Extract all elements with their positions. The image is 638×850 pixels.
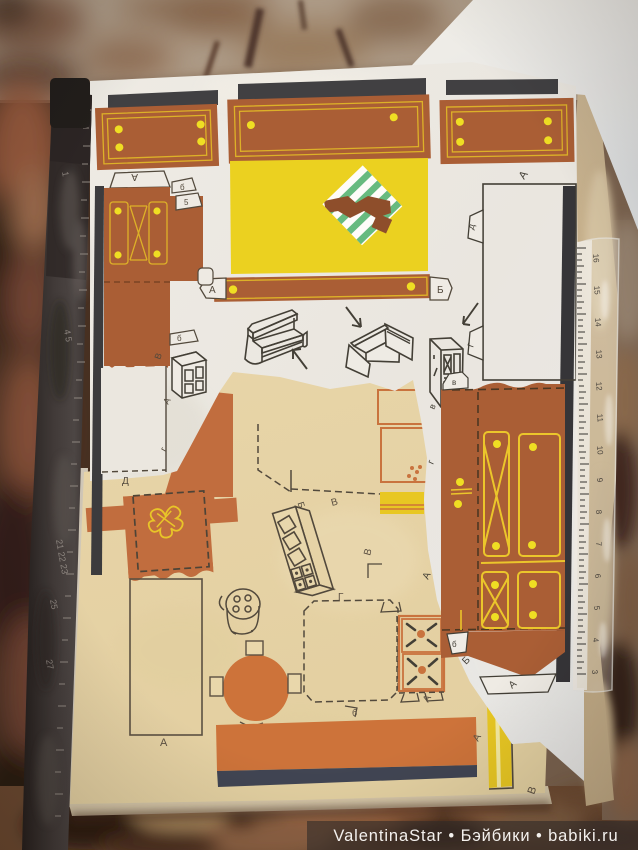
- svg-text:ValentinaStar • Бэйбики • babi: ValentinaStar • Бэйбики • babiki.ru: [333, 827, 618, 845]
